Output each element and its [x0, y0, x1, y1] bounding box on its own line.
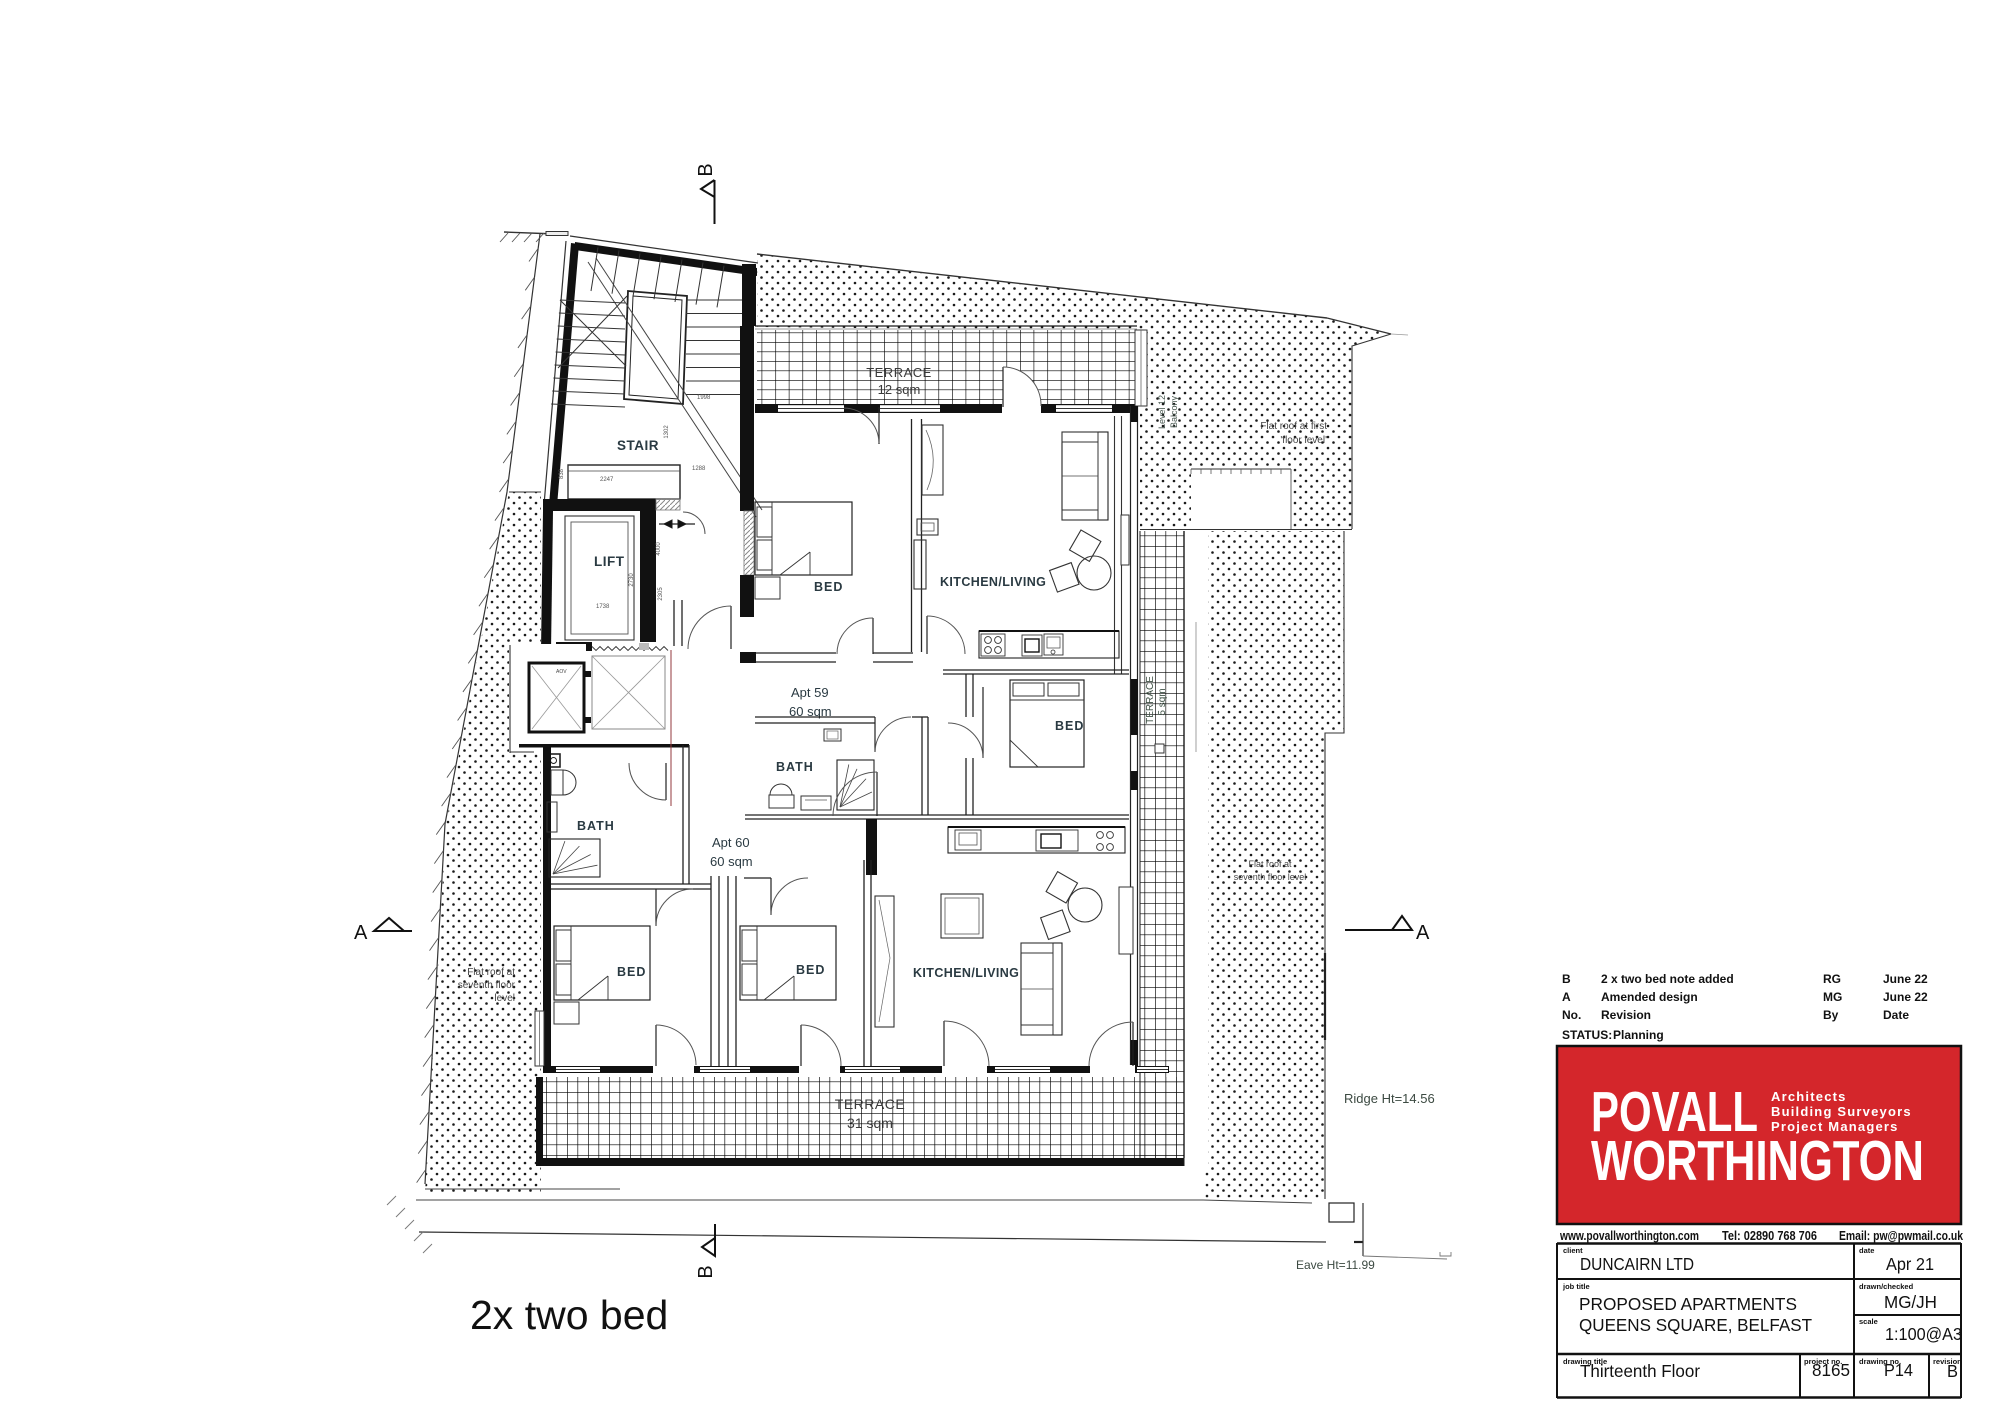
svg-text:June 22: June 22: [1883, 990, 1928, 1004]
svg-text:2 x two bed note added: 2 x two bed note added: [1601, 972, 1734, 986]
svg-text:MG: MG: [1823, 990, 1842, 1004]
svg-text:BED: BED: [1055, 719, 1084, 733]
svg-text:2305: 2305: [658, 587, 664, 601]
svg-text:Revision: Revision: [1601, 1008, 1651, 1022]
svg-text:BATH: BATH: [577, 819, 615, 833]
svg-text:4000: 4000: [656, 542, 662, 556]
svg-text:A: A: [1416, 922, 1430, 944]
svg-text:838: 838: [559, 468, 565, 479]
svg-text:1738: 1738: [596, 604, 610, 610]
svg-text:1302: 1302: [664, 425, 670, 439]
svg-text:seventh floor: seventh floor: [458, 980, 516, 991]
svg-text:'floor level': 'floor level': [1280, 435, 1327, 446]
svg-text:Email: pw@pwmail.co.uk: Email: pw@pwmail.co.uk: [1839, 1228, 1964, 1243]
svg-text:B: B: [695, 163, 717, 176]
svg-text:P14: P14: [1884, 1360, 1913, 1380]
svg-text:B: B: [1562, 972, 1571, 986]
svg-text:B: B: [1947, 1361, 1958, 1381]
svg-text:Planning: Planning: [1613, 1028, 1664, 1042]
svg-text:TERRACE: TERRACE: [835, 1096, 905, 1112]
svg-text:KITCHEN/LIVING: KITCHEN/LIVING: [913, 966, 1019, 980]
svg-text:PROPOSED APARTMENTS: PROPOSED APARTMENTS: [1579, 1294, 1797, 1314]
svg-text:Eave Ht=11.99: Eave Ht=11.99: [1296, 1258, 1375, 1272]
svg-text:Project Managers: Project Managers: [1771, 1119, 1899, 1134]
svg-text:Apr 21: Apr 21: [1886, 1254, 1934, 1274]
svg-text:KITCHEN/LIVING: KITCHEN/LIVING: [940, 575, 1046, 589]
svg-text:Level 12: Level 12: [1157, 395, 1167, 429]
svg-text:Flat roof at: Flat roof at: [467, 967, 515, 978]
svg-text:WORTHINGTON: WORTHINGTON: [1591, 1129, 1924, 1193]
svg-text:Amended design: Amended design: [1601, 990, 1698, 1004]
svg-text:drawn/checked: drawn/checked: [1859, 1282, 1914, 1291]
svg-text:1998: 1998: [697, 395, 711, 401]
svg-text:Architects: Architects: [1771, 1089, 1847, 1104]
svg-text:A: A: [1562, 990, 1571, 1004]
svg-text:QUEENS SQUARE, BELFAST: QUEENS SQUARE, BELFAST: [1579, 1315, 1812, 1335]
svg-text:DUNCAIRN LTD: DUNCAIRN LTD: [1580, 1254, 1694, 1274]
svg-text:TERRACE: TERRACE: [1145, 676, 1156, 724]
svg-text:Flat roof at: Flat roof at: [1248, 859, 1292, 869]
svg-text:12 sqm: 12 sqm: [878, 382, 921, 397]
svg-text:No.: No.: [1562, 1008, 1581, 1022]
svg-text:Flat roof at first: Flat roof at first: [1260, 421, 1327, 432]
svg-text:June 22: June 22: [1883, 972, 1928, 986]
svg-text:B: B: [695, 1265, 717, 1278]
svg-text:1:100@A3: 1:100@A3: [1885, 1324, 1962, 1344]
svg-text:Balcony: Balcony: [1169, 395, 1179, 428]
svg-text:date: date: [1859, 1246, 1874, 1255]
svg-text:seventh floor level: seventh floor level: [1234, 872, 1307, 882]
svg-text:5 sqm: 5 sqm: [1157, 688, 1168, 715]
svg-text:2247: 2247: [600, 477, 614, 483]
svg-text:Apt 59: Apt 59: [791, 685, 829, 700]
svg-text:BED: BED: [814, 580, 843, 594]
svg-text:Date: Date: [1883, 1008, 1909, 1022]
svg-text:2x two bed: 2x two bed: [470, 1292, 668, 1338]
svg-text:BED: BED: [617, 965, 646, 979]
svg-text:job title: job title: [1562, 1282, 1590, 1291]
svg-text:BATH: BATH: [776, 760, 814, 774]
svg-text:31 sqm: 31 sqm: [847, 1115, 893, 1131]
svg-text:Building Surveyors: Building Surveyors: [1771, 1104, 1912, 1119]
svg-text:A: A: [354, 922, 368, 944]
svg-text:STAIR: STAIR: [617, 438, 659, 453]
svg-text:Ridge Ht=14.56: Ridge Ht=14.56: [1344, 1091, 1435, 1106]
svg-text:2730: 2730: [629, 573, 635, 587]
svg-text:scale: scale: [1859, 1317, 1878, 1326]
svg-text:1288: 1288: [692, 466, 706, 472]
svg-text:8165: 8165: [1812, 1360, 1850, 1380]
svg-text:60 sqm: 60 sqm: [710, 854, 753, 869]
svg-text:level: level: [494, 993, 515, 1004]
svg-text:Thirteenth Floor: Thirteenth Floor: [1580, 1361, 1700, 1381]
svg-text:Apt 60: Apt 60: [712, 835, 750, 850]
svg-text:Tel: 02890 768 706: Tel: 02890 768 706: [1722, 1228, 1817, 1243]
svg-text:www.povallworthington.com: www.povallworthington.com: [1559, 1228, 1699, 1243]
svg-text:AOV: AOV: [556, 669, 567, 675]
svg-text:MG/JH: MG/JH: [1884, 1292, 1937, 1312]
svg-text:By: By: [1823, 1008, 1839, 1022]
svg-text:TERRACE: TERRACE: [866, 365, 932, 380]
svg-text:LIFT: LIFT: [594, 554, 625, 569]
svg-text:RG: RG: [1823, 972, 1841, 986]
svg-text:STATUS:: STATUS:: [1562, 1028, 1612, 1042]
svg-text:BED: BED: [796, 963, 825, 977]
